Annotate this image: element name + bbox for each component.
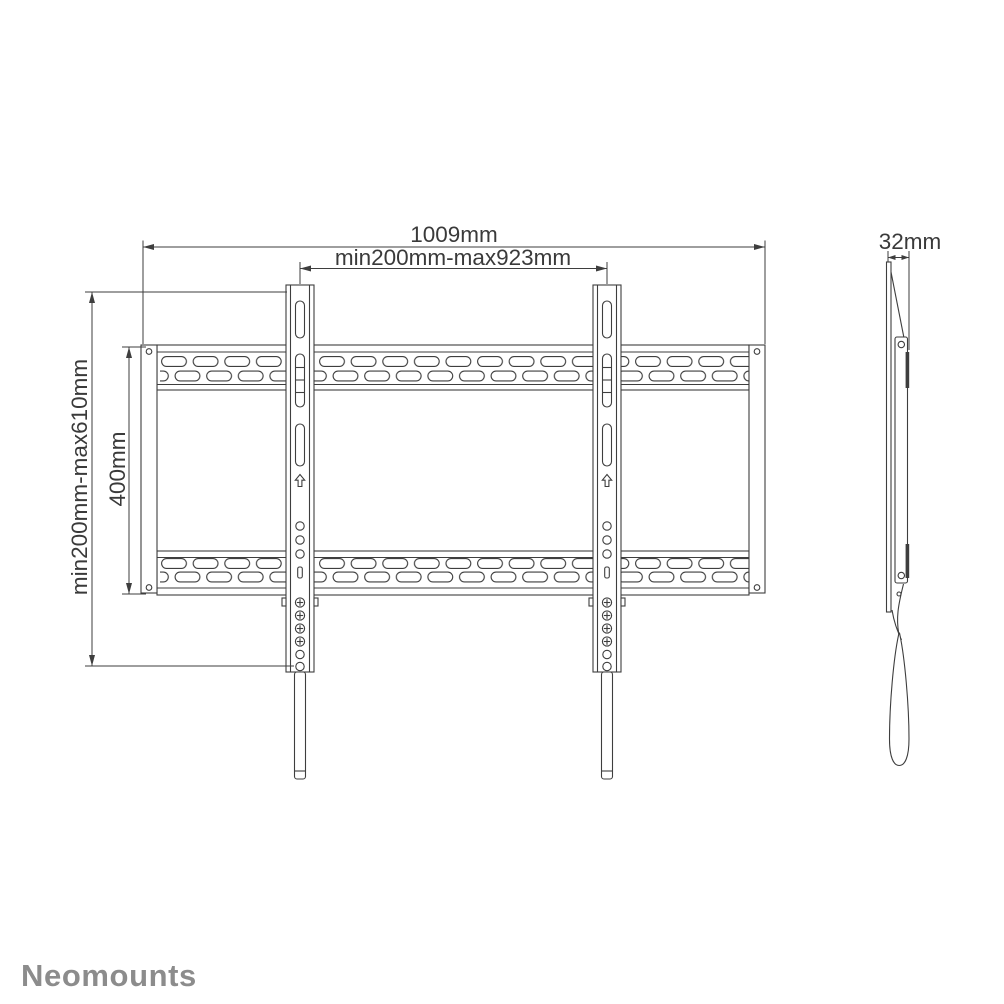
vesa-slot-row (160, 572, 750, 583)
rail-height-label: 400mm (105, 431, 130, 506)
vesa-slot-row (160, 356, 750, 367)
brand-logo: Neomounts (21, 958, 197, 993)
vesa-slot-row (160, 371, 750, 382)
dimension-bracket-span: min200mm-max923mm (300, 245, 607, 284)
bottom-rail (157, 551, 750, 595)
technical-drawing-wall-mount: 1009mm min200mm-max923mm min200mm-max610… (0, 0, 1004, 1004)
side-view: 32mm (879, 229, 942, 766)
top-rail (157, 345, 750, 390)
dimension-total-width: 1009mm (143, 222, 765, 344)
end-plate-right (749, 345, 765, 593)
tv-bracket-left (282, 285, 318, 779)
top-rail-section (906, 352, 910, 388)
pull-strap-loop (890, 633, 910, 766)
strap-cord (898, 584, 904, 634)
vesa-vertical-label: min200mm-max610mm (67, 359, 92, 595)
wall-plate-profile (887, 262, 892, 612)
depth-label: 32mm (879, 229, 942, 254)
dimension-rail-height: 400mm (105, 347, 146, 594)
total-width-label: 1009mm (410, 222, 498, 247)
profile (887, 262, 910, 766)
bracket-span-label: min200mm-max923mm (335, 245, 571, 270)
front-view: 1009mm min200mm-max923mm min200mm-max610… (67, 222, 765, 779)
tv-bracket-right (589, 285, 625, 779)
end-plate-left (141, 345, 157, 593)
vesa-slot-row (160, 558, 750, 569)
bottom-rail-section (906, 544, 910, 578)
